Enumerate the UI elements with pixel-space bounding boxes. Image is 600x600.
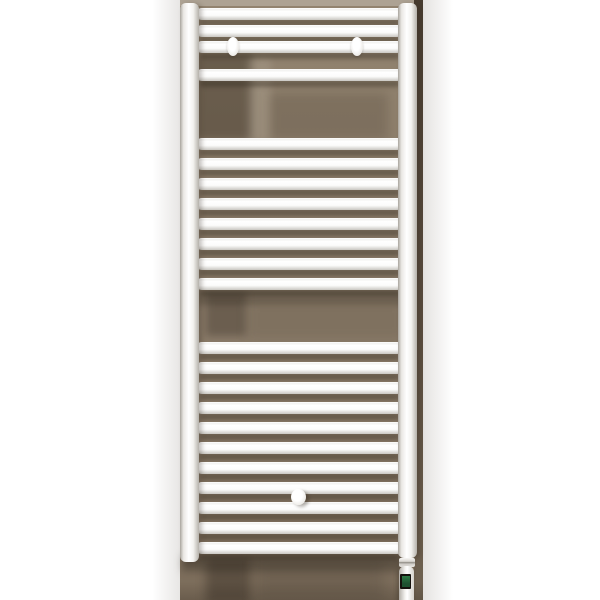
radiator-bar bbox=[196, 258, 403, 270]
radiator-bar bbox=[196, 522, 403, 534]
radiator-bar bbox=[196, 25, 403, 37]
bar-cast-shadow bbox=[200, 373, 400, 380]
bar-cast-shadow bbox=[200, 149, 400, 156]
radiator-bar bbox=[196, 402, 403, 414]
wall-top-highlight bbox=[180, 0, 423, 6]
bar-cast-shadow bbox=[200, 413, 400, 420]
bar-cast-shadow bbox=[200, 533, 400, 540]
bar-cast-shadow bbox=[200, 393, 400, 400]
page-edge-shadow bbox=[423, 0, 453, 600]
bar-cast-shadow bbox=[200, 433, 400, 440]
bar-cast-shadow bbox=[200, 169, 400, 176]
product-photo bbox=[0, 0, 600, 600]
radiator-bar bbox=[196, 278, 403, 290]
radiator-bar bbox=[196, 198, 403, 210]
radiator-bar bbox=[196, 362, 403, 374]
radiator-bar bbox=[196, 342, 403, 354]
radiator-bar bbox=[196, 158, 403, 170]
radiator-left-rail bbox=[180, 3, 199, 562]
element-display-screen bbox=[402, 576, 410, 587]
page-edge-shadow bbox=[152, 0, 180, 600]
bar-cast-shadow bbox=[200, 269, 400, 276]
radiator-bar bbox=[196, 218, 403, 230]
bar-cast-shadow bbox=[200, 189, 400, 196]
radiator-bar bbox=[196, 462, 403, 474]
radiator-bar bbox=[196, 542, 403, 554]
bar-cast-shadow bbox=[200, 473, 400, 480]
radiator-right-rail bbox=[398, 3, 417, 558]
bar-cast-shadow bbox=[200, 453, 400, 460]
bar-cast-shadow bbox=[200, 80, 400, 87]
radiator-bar bbox=[196, 138, 403, 150]
radiator-bar bbox=[196, 8, 403, 20]
radiator-bar bbox=[196, 382, 403, 394]
bar-cast-shadow bbox=[200, 553, 400, 560]
vent-plug-knob bbox=[291, 489, 306, 505]
radiator-bar bbox=[196, 442, 403, 454]
bar-cast-shadow bbox=[200, 209, 400, 216]
radiator-bar bbox=[196, 238, 403, 250]
bar-cast-shadow bbox=[200, 353, 400, 360]
bar-cast-shadow bbox=[200, 513, 400, 520]
radiator-bar bbox=[196, 178, 403, 190]
bar-cast-shadow bbox=[200, 289, 400, 296]
wall-bracket-knob bbox=[227, 37, 239, 56]
radiator-bar bbox=[196, 69, 403, 81]
radiator-bar bbox=[196, 422, 403, 434]
bar-cast-shadow bbox=[200, 249, 400, 256]
bar-cast-shadow bbox=[200, 229, 400, 236]
wall-bracket-knob bbox=[351, 37, 363, 56]
